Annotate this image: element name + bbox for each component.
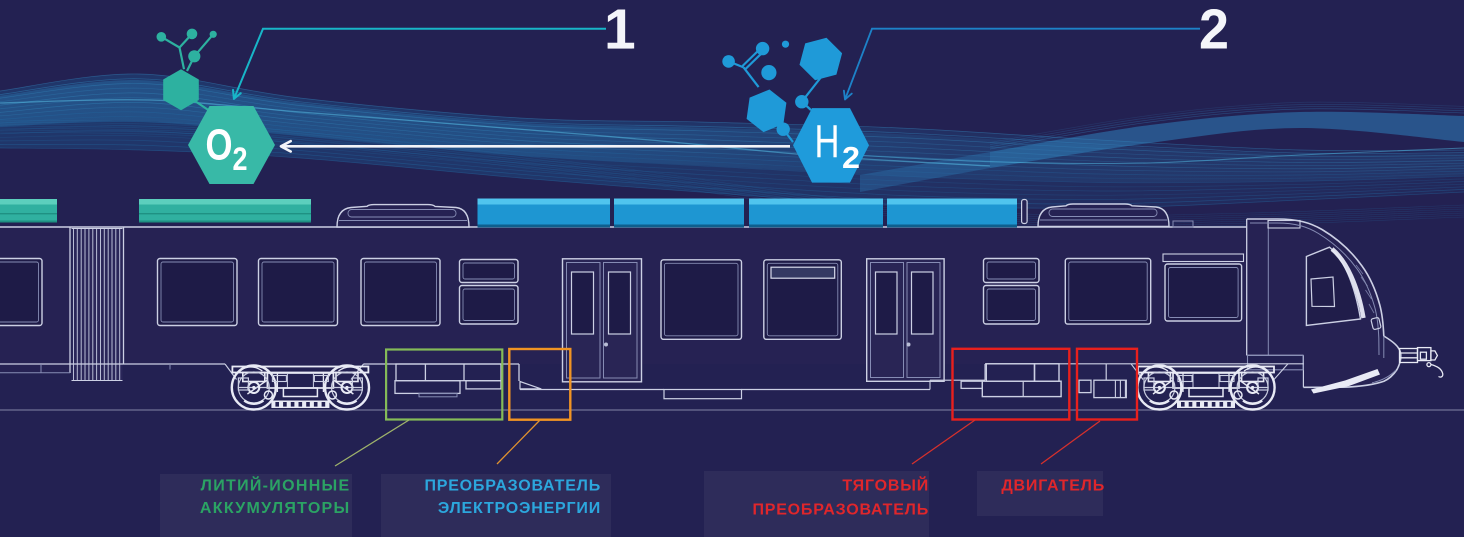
svg-text:ПРЕОБРАЗОВАТЕЛЬ: ПРЕОБРАЗОВАТЕЛЬ — [424, 478, 601, 495]
svg-text:ДВИГАТЕЛЬ: ДВИГАТЕЛЬ — [1001, 478, 1105, 495]
svg-text:1: 1 — [604, 0, 636, 62]
svg-text:H: H — [815, 116, 840, 168]
svg-text:ТЯГОВЫЙ: ТЯГОВЫЙ — [842, 476, 929, 495]
svg-text:O: O — [206, 121, 233, 170]
svg-text:2: 2 — [842, 140, 860, 175]
svg-text:ПРЕОБРАЗОВАТЕЛЬ: ПРЕОБРАЗОВАТЕЛЬ — [752, 502, 929, 519]
svg-text:2: 2 — [233, 141, 248, 177]
svg-text:2: 2 — [1199, 0, 1229, 62]
svg-text:ЭЛЕКТРОЭНЕРГИИ: ЭЛЕКТРОЭНЕРГИИ — [438, 500, 601, 517]
svg-text:ЛИТИЙ-ИОННЫЕ: ЛИТИЙ-ИОННЫЕ — [201, 476, 351, 495]
svg-text:АККУМУЛЯТОРЫ: АККУМУЛЯТОРЫ — [200, 500, 351, 517]
